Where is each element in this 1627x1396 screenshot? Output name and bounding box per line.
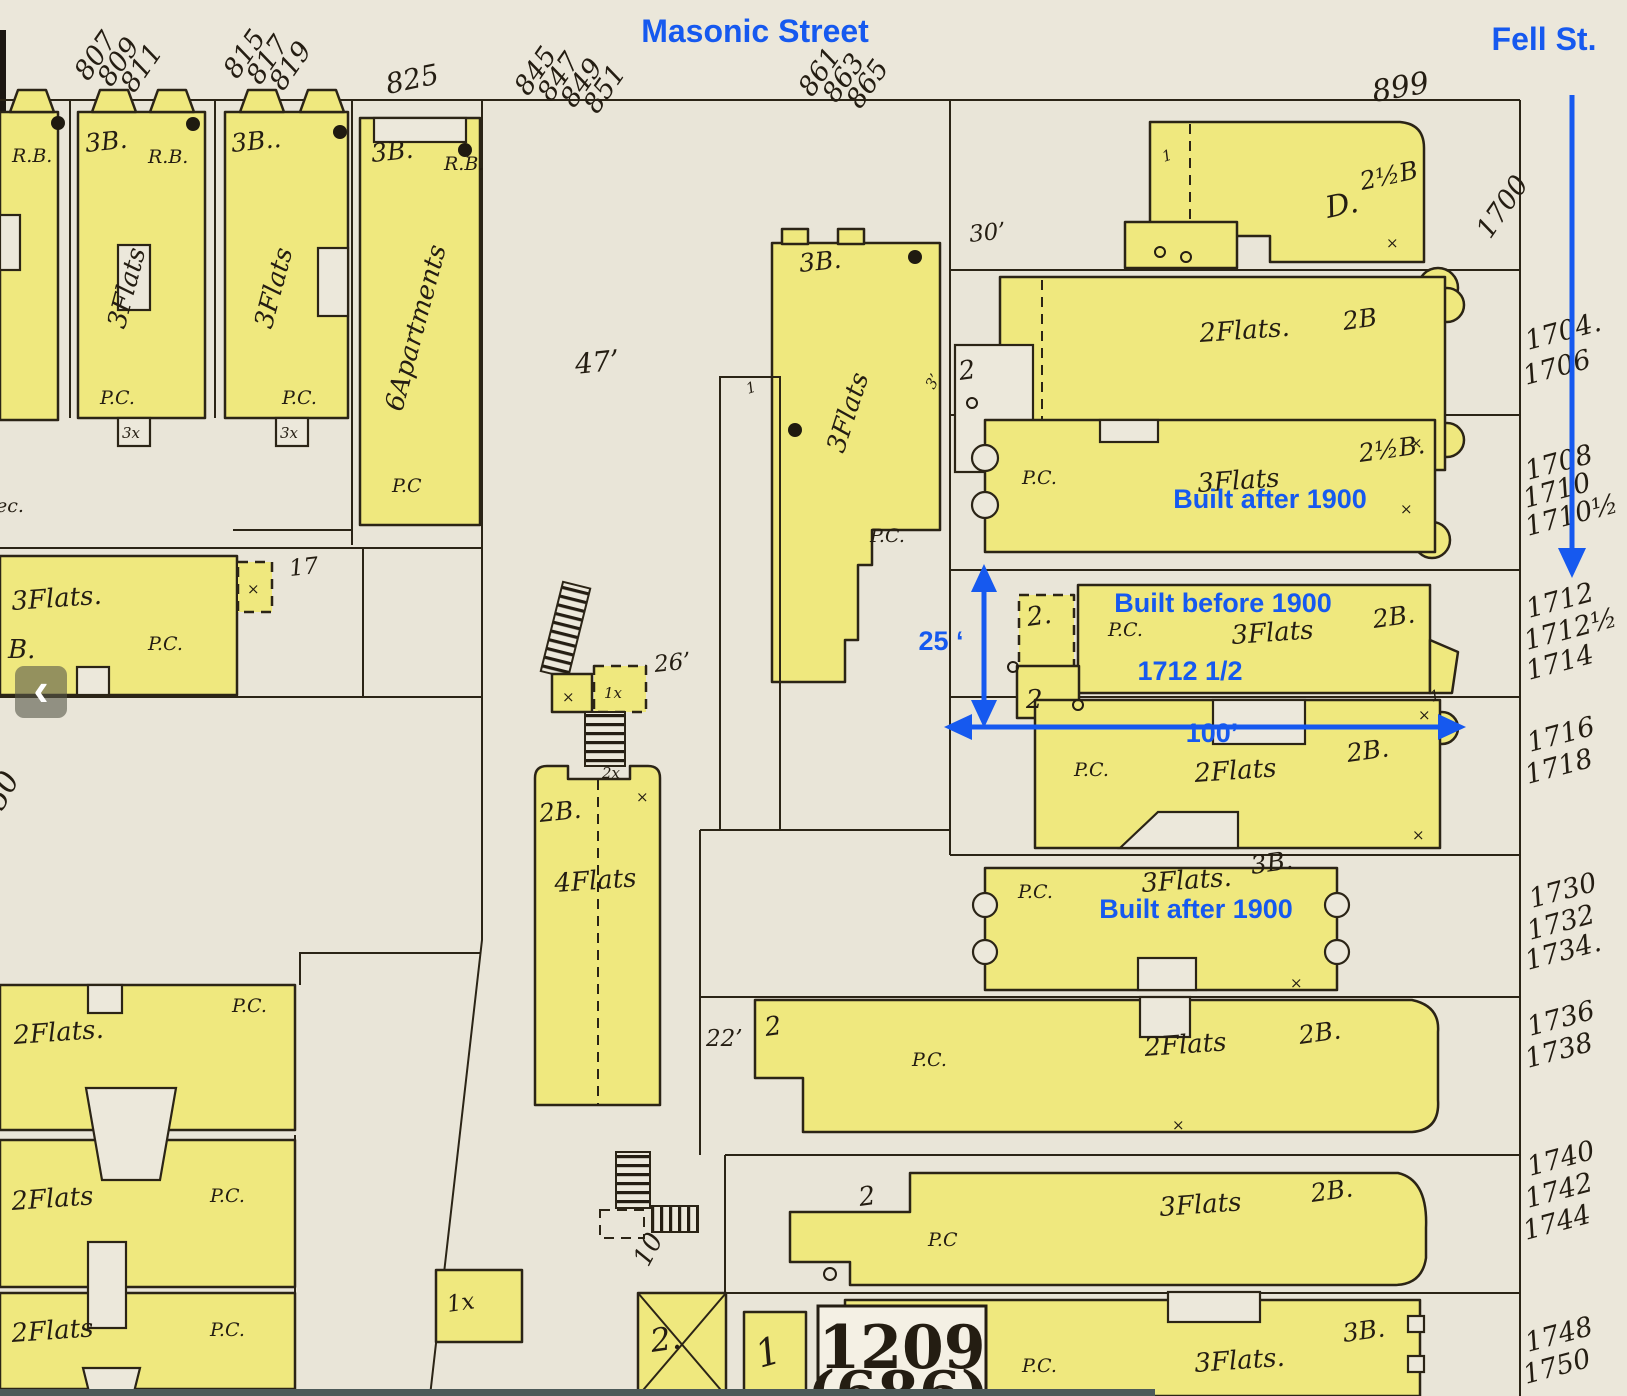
class-label: D. [1321,185,1361,226]
class-label: 3B. [370,135,415,168]
note: 2 [856,1181,878,1213]
class-label: 2B. [537,795,583,828]
dim-100ft: 100’ [1186,718,1239,748]
class-label: 3B. [84,125,129,158]
pc-label: P.C. [869,525,905,547]
pc-label: P.C. [1021,467,1057,489]
class-label: 2B. [1308,1173,1355,1208]
class-label: 2B. [1344,733,1391,768]
note: × [562,688,575,706]
use-label: 2Flats [9,1181,94,1217]
dim-label: 47’ [572,343,621,381]
use-label: 3Flats. [1193,1343,1285,1379]
note-built-after-upper: Built after 1900 [1173,484,1367,514]
note: 1x [604,684,623,702]
class-label: B. [7,635,35,665]
note: × [1412,826,1425,844]
pc-label: P.C. [911,1049,947,1071]
use-label: 2Flats [9,1313,94,1349]
note: × [1290,974,1303,992]
use-label: 3Flats. [10,581,102,617]
note: 2x [601,764,621,782]
stairs [616,1152,650,1208]
sanborn-map-viewer: R.B. 3B. R.B. 3B.. 3B. R.B. 3Flats 3Flat… [0,0,1627,1396]
note-1712-half: 1712 1/2 [1137,656,1242,686]
use-label: 2Flats [1142,1027,1227,1063]
note: 2. [647,1318,684,1360]
class-label: 2B [1340,302,1379,336]
use-label: 4Flats [552,863,637,899]
pc-label: P.C [391,475,422,497]
photo-edge-artifact [0,1389,1155,1396]
street-name-fell: Fell St. [1492,21,1597,57]
back-button[interactable]: ‹ [15,666,67,718]
note-built-after-lower: Built after 1900 [1099,894,1293,924]
dim-label: 10 [628,1228,670,1271]
pc-label: P.C. [1021,1355,1057,1377]
stairs [652,1206,698,1232]
pc-label: P.C. [1107,619,1143,641]
pc-label: P.C. [231,995,267,1017]
pc-label: P.C. [281,387,317,409]
pc-label: P.C. [99,387,135,409]
class-label: 3B. [798,245,843,278]
class-label: 2B. [1296,1015,1343,1050]
pc-label: P.C. [1073,759,1109,781]
note: × [1400,500,1413,518]
chevron-left-icon: ‹ [33,666,48,712]
use-label: 3Flats [1158,1187,1242,1223]
dim-25ft: 25 ‘ [918,626,963,656]
rb-label: R.B. [11,145,52,167]
rb-label: R.B. [147,146,188,168]
note: × [247,580,260,598]
rb-label: R.B. [443,153,484,175]
note: 1x [445,1288,476,1318]
class-label: 3B.. [230,124,283,158]
pc-label: P.C. [1017,881,1053,903]
building-861-865 [772,243,940,682]
class-label: 3B. [1249,845,1295,880]
note-built-before: Built before 1900 [1114,588,1332,618]
note: 3x [122,424,141,442]
use-label: 3Flats [1230,615,1314,651]
dim-label: 22’ [705,1026,743,1052]
use-label: 2Flats. [11,1015,104,1051]
use-label: 2Flats [1192,753,1277,789]
note: × [636,788,649,806]
class-label: 3B. [1341,1313,1387,1348]
pc-label-cut: ec. [0,495,24,517]
sanborn-map: R.B. 3B. R.B. 3B.. 3B. R.B. 3Flats 3Flat… [0,0,1627,1396]
dim-label: 26’ [652,648,692,678]
note: × [1172,1116,1185,1134]
dim-label: 17 [288,553,320,582]
note: × [1386,234,1399,252]
note: × [1418,706,1431,724]
pc-label: P.C. [209,1319,245,1341]
stairs [585,712,625,766]
pc-label: P.C [927,1229,958,1251]
note: 2 [1025,685,1043,715]
dim-label: 30’ [968,218,1007,248]
dim-label: 50 [0,766,27,816]
note: 1 [744,378,759,398]
note: 3x [280,424,299,442]
pc-label: P.C. [147,633,183,655]
use-label: 2Flats. [1197,313,1290,349]
class-label: 2B. [1370,599,1417,634]
street-name-masonic: Masonic Street [641,13,869,49]
pc-label: P.C. [209,1185,245,1207]
stairs [541,582,590,678]
note: 2. [1024,600,1054,633]
